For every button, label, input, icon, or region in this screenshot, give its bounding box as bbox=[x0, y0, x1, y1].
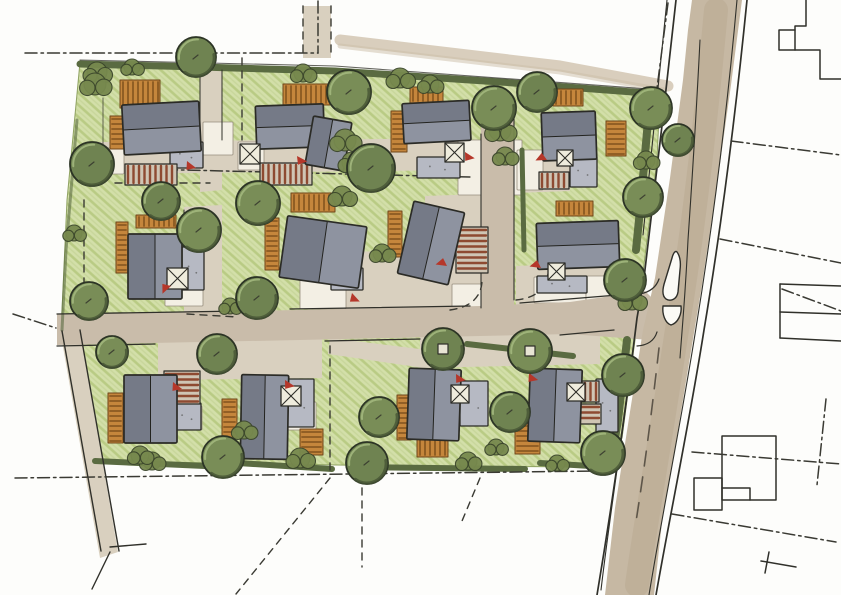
tree bbox=[96, 336, 128, 368]
timber-fence bbox=[108, 393, 123, 443]
tree bbox=[359, 397, 399, 437]
site-plan-canvas bbox=[0, 0, 841, 595]
boundary-dashdot-line bbox=[13, 314, 56, 328]
driveway-court bbox=[303, 6, 331, 58]
tree bbox=[581, 431, 625, 475]
pergola bbox=[456, 227, 488, 273]
ink-line bbox=[779, 30, 795, 50]
pergola bbox=[260, 163, 312, 185]
tree bbox=[236, 181, 280, 225]
house-roof bbox=[402, 100, 471, 143]
garage-cross-marker bbox=[281, 386, 301, 406]
ink-line bbox=[694, 478, 722, 510]
boundary-dashdot-line bbox=[720, 239, 841, 263]
garage-block bbox=[174, 403, 201, 430]
tree bbox=[490, 392, 530, 432]
garage-cross-marker bbox=[445, 143, 464, 162]
tree bbox=[472, 86, 516, 130]
tree bbox=[70, 142, 114, 186]
ink-line bbox=[722, 488, 750, 500]
ink-line bbox=[780, 338, 841, 341]
ink-line bbox=[780, 312, 841, 314]
tree bbox=[508, 329, 552, 373]
tree bbox=[623, 177, 663, 217]
garage-cross-marker bbox=[451, 385, 469, 403]
timber-fence bbox=[116, 222, 128, 273]
ink-line bbox=[795, 0, 841, 79]
tree bbox=[236, 277, 278, 319]
garage-block bbox=[570, 157, 597, 187]
tree bbox=[176, 37, 216, 77]
hedge-line bbox=[522, 150, 524, 250]
tree bbox=[517, 72, 557, 112]
site-plan bbox=[0, 0, 841, 595]
plot-dash-line bbox=[236, 478, 330, 594]
boundary-dashdot-line bbox=[672, 514, 836, 542]
garage-cross-marker bbox=[557, 150, 573, 166]
tree bbox=[662, 124, 694, 156]
ink-line bbox=[780, 284, 841, 286]
garage-cross-marker bbox=[567, 383, 585, 401]
garage-cross-marker bbox=[240, 144, 260, 164]
tree bbox=[142, 182, 180, 220]
timber-fence bbox=[606, 121, 626, 156]
house-roof bbox=[279, 216, 367, 289]
house-roof bbox=[122, 101, 202, 155]
tree bbox=[347, 144, 395, 192]
timber-fence bbox=[556, 201, 593, 216]
boundary-dashdot-line bbox=[731, 141, 841, 155]
tree bbox=[346, 442, 388, 484]
white-paving bbox=[203, 122, 233, 155]
tree bbox=[70, 282, 108, 320]
plot-dash-line bbox=[462, 478, 480, 521]
garage-cross-marker bbox=[548, 263, 565, 280]
pergola bbox=[539, 172, 569, 189]
tree bbox=[602, 354, 644, 396]
pergola bbox=[125, 164, 177, 185]
sketch-layers bbox=[13, 0, 841, 595]
tree bbox=[202, 436, 244, 478]
house-roof bbox=[407, 368, 461, 441]
tree bbox=[630, 87, 672, 129]
ink-line bbox=[722, 436, 776, 500]
house-roof bbox=[536, 221, 620, 270]
house-roof bbox=[124, 375, 177, 443]
tree bbox=[177, 208, 221, 252]
timber-fence bbox=[283, 84, 330, 105]
boundary-dashdot-line bbox=[817, 399, 826, 485]
tree bbox=[327, 70, 371, 114]
boundary-dashdot-line bbox=[782, 289, 841, 311]
tree bbox=[604, 259, 646, 301]
timber-fence bbox=[265, 218, 279, 270]
tree bbox=[197, 334, 237, 374]
tree bbox=[422, 328, 464, 370]
